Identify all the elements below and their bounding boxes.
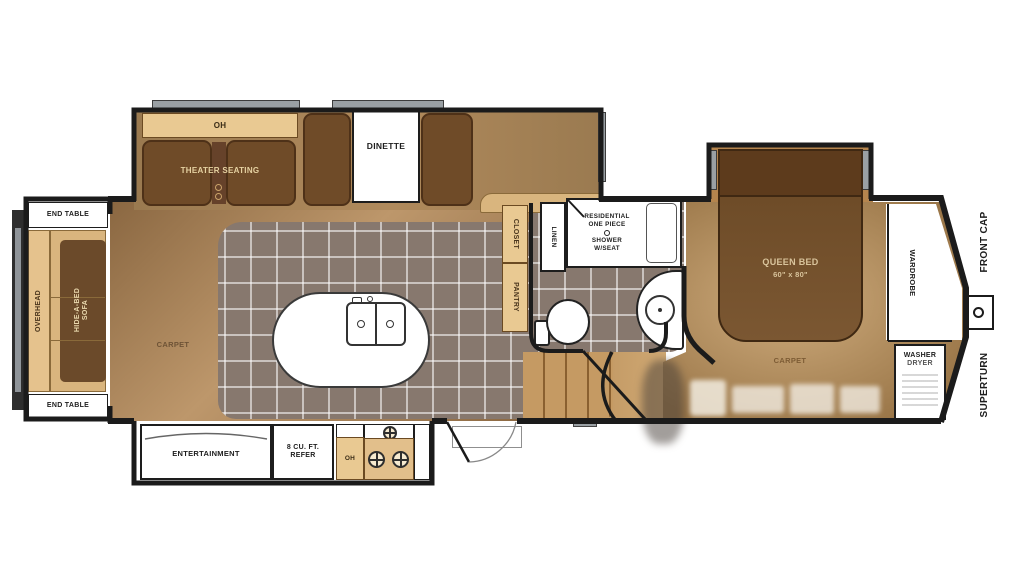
dresser-block: [840, 386, 880, 413]
shower-label-line4: W/SEAT: [594, 245, 620, 253]
queen-bed-label: QUEEN BED: [718, 256, 863, 268]
window: [332, 100, 444, 109]
front-cap-label: FRONT CAP: [979, 192, 991, 292]
sofa-label-line2: SOFA: [82, 300, 90, 320]
queen-bed: [718, 195, 863, 342]
end-table-bottom-label: END TABLE: [28, 394, 108, 419]
wall-vent: [573, 419, 597, 427]
wardrobe-label: WARDROBE: [907, 223, 917, 323]
bedroom-carpet-label: CARPET: [740, 355, 840, 367]
shower-label-line2: ONE PIECE: [589, 221, 626, 229]
wardrobe: [886, 204, 964, 340]
kingpin-circle: [973, 307, 984, 318]
entertainment-label: ENTERTAINMENT: [140, 448, 272, 460]
sofa-label-line1: HIDE-A-BED: [74, 288, 82, 332]
cupholder-icon: [215, 193, 222, 200]
window: [862, 150, 870, 190]
washer-label-line1: WASHER: [904, 352, 937, 360]
end-table-top-label: END TABLE: [28, 202, 108, 228]
shower-drain-icon: [604, 230, 610, 236]
cupholder-icon: [215, 184, 222, 191]
end-counter: [414, 424, 430, 480]
window: [709, 150, 717, 190]
superturn-label: SUPERTURN: [979, 335, 991, 435]
shower-label-line1: RESIDENTIAL: [584, 213, 629, 221]
theater-seating-label: THEATER SEATING: [142, 164, 298, 178]
refer-label-line2: REFER: [290, 452, 315, 460]
refer-label: 8 CU. FT. REFER: [272, 424, 334, 480]
rear-slide-window: [15, 228, 21, 392]
dresser-watermark: [660, 372, 892, 422]
floorplan-canvas: END TABLE OVERHEAD HIDE-A-BED SOFA END T…: [0, 0, 1024, 576]
dinette-bench-left: [303, 113, 351, 206]
queen-bed-head: [718, 149, 863, 197]
window: [598, 112, 606, 182]
overhead-label: OVERHEAD: [35, 241, 43, 381]
shower-pan: [646, 203, 677, 263]
living-carpet-label: CARPET: [133, 339, 213, 351]
stove-burner-icon: [392, 451, 409, 468]
sink-divider: [375, 304, 377, 344]
watermark-smudge: [642, 360, 684, 444]
dresser-block: [690, 380, 726, 416]
queen-bed-size-label: 60" x 80": [718, 270, 863, 281]
washer-dryer-label: WASHER DRYER: [896, 350, 944, 370]
oh-theater-label: OH: [142, 113, 298, 138]
washer-label-line2: DRYER: [907, 360, 933, 368]
dinette-bench-right: [421, 113, 473, 206]
oh-kitchen-label: OH: [336, 437, 364, 480]
window: [152, 100, 300, 109]
shower-label-line3: SHOWER: [592, 237, 622, 245]
toilet-icon: [546, 299, 590, 345]
entry-step-exterior: [452, 426, 522, 448]
bedroom-steps: [523, 352, 613, 419]
sink-drain-icon: [386, 320, 394, 328]
linen-label: LINEN: [549, 187, 557, 287]
dinette-label: DINETTE: [352, 140, 420, 154]
sink-drain-icon: [357, 320, 365, 328]
dinette-table: [352, 110, 420, 203]
pantry-label: PANTRY: [511, 247, 519, 347]
washer-fineprint-texture: [902, 374, 938, 410]
sink-drain-icon: [658, 308, 662, 312]
dresser-block: [790, 384, 834, 414]
stove-burner-icon: [368, 451, 385, 468]
oh-cabinet-top: [336, 424, 364, 438]
shower-label: RESIDENTIAL ONE PIECE SHOWER W/SEAT: [569, 201, 645, 265]
sofa-label: HIDE-A-BED SOFA: [74, 240, 90, 380]
dresser-block: [732, 386, 784, 413]
refer-label-line1: 8 CU. FT.: [287, 444, 319, 452]
